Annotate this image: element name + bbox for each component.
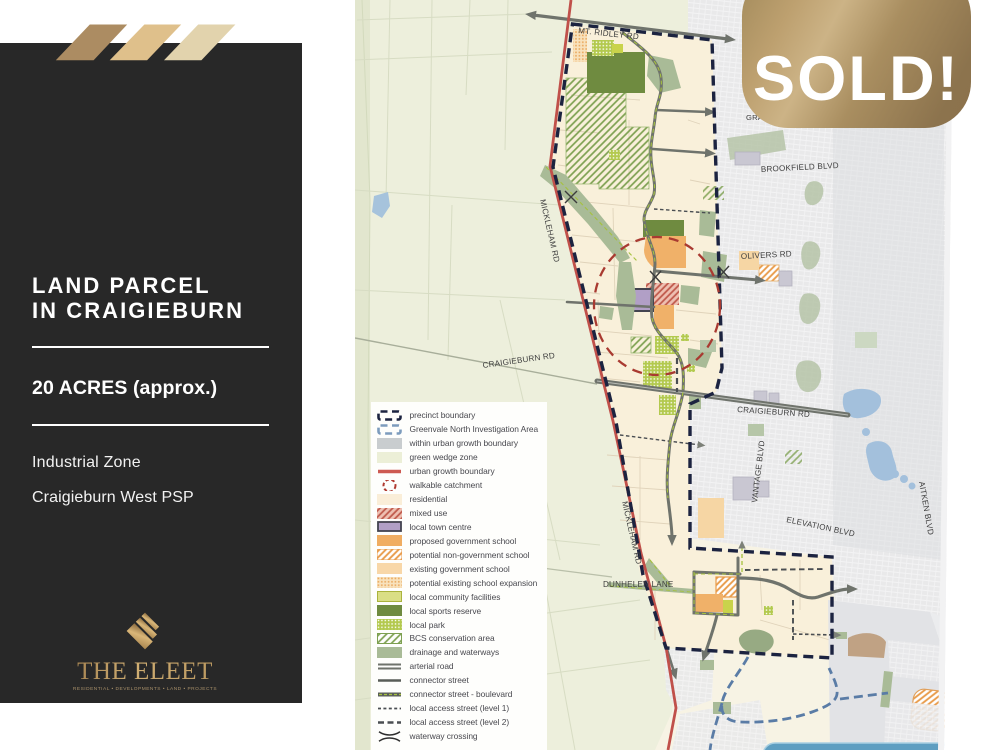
svg-text:DUNHELEN LANE: DUNHELEN LANE: [603, 580, 674, 589]
